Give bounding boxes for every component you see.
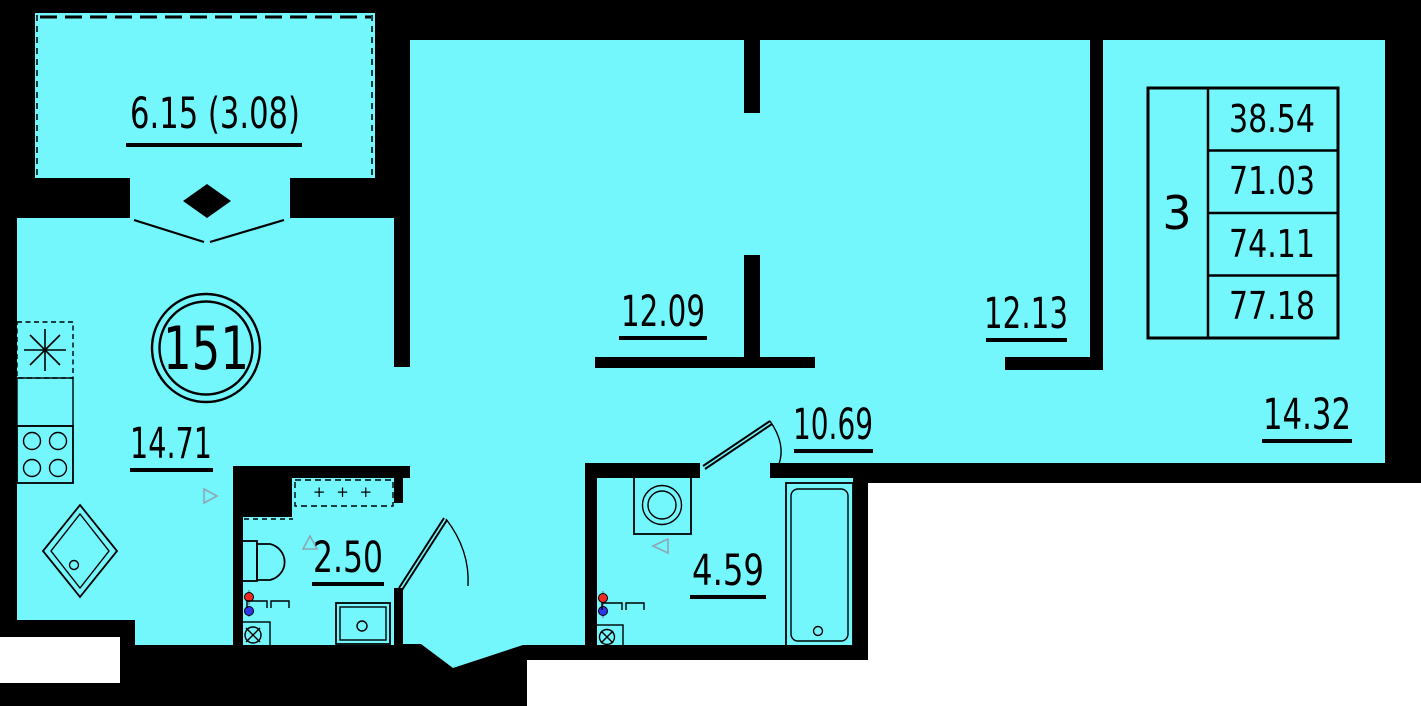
room-a-area-value: 12.09 <box>621 287 705 337</box>
shelf-marks: + + + <box>313 483 375 501</box>
label-hall: 10.69 <box>793 400 873 451</box>
wall-room-divider <box>1090 40 1103 368</box>
fridge-star-icon <box>24 329 66 371</box>
room-c-area-value: 14.32 <box>1263 390 1351 440</box>
wall-stub-mid <box>744 255 760 368</box>
cold-water-dot <box>599 607 608 616</box>
hall-area-value: 10.69 <box>793 400 873 450</box>
room-b-area-value: 12.13 <box>984 289 1068 339</box>
label-bath-small: 2.50 <box>312 533 384 584</box>
hot-water-dot <box>599 594 608 603</box>
label-kitchen: 14.71 <box>130 419 213 470</box>
exterior-bottom-middle <box>527 660 868 706</box>
bath-small-area-value: 2.50 <box>313 533 383 583</box>
hot-water-dot <box>245 593 254 602</box>
bath-large-area-value: 4.59 <box>692 546 764 596</box>
table-value-4: 77.18 <box>1229 284 1315 328</box>
wall-kitchen-room <box>394 218 410 367</box>
wall-bath-small-top <box>292 466 410 478</box>
rooms-count: 3 <box>1162 186 1191 240</box>
label-room-a: 12.09 <box>619 287 707 338</box>
label-balcony: 6.15 (3.08) <box>126 89 302 145</box>
apartment-number: 151 <box>163 314 249 384</box>
wall-bath-small-corner <box>233 466 292 517</box>
cold-water-dot <box>245 607 254 616</box>
kitchen-area-value: 14.71 <box>130 419 212 469</box>
balcony-area-value: 6.15 (3.08) <box>130 89 300 139</box>
bath-small-door-opening <box>394 503 403 588</box>
wall-rooms-bottom-right <box>1005 357 1103 370</box>
wall-rooms-bottom-left <box>595 357 815 368</box>
table-value-1: 38.54 <box>1229 97 1315 141</box>
wall-balcony-right <box>375 0 410 218</box>
wall-bath-small-bottom <box>233 645 410 657</box>
floor-plan-page: + + + <box>0 0 1421 706</box>
wall-stub-top <box>744 40 760 113</box>
table-value-2: 71.03 <box>1229 159 1315 203</box>
label-bath-large: 4.59 <box>690 546 766 597</box>
table-value-3: 74.11 <box>1229 222 1315 266</box>
exterior-bottom-left <box>0 637 120 683</box>
label-room-c: 14.32 <box>1262 390 1352 441</box>
hallway-floor <box>403 367 585 668</box>
exterior-bottom-right <box>868 483 1421 706</box>
label-room-b: 12.13 <box>984 289 1068 340</box>
floor-plan: + + + <box>0 0 1421 706</box>
